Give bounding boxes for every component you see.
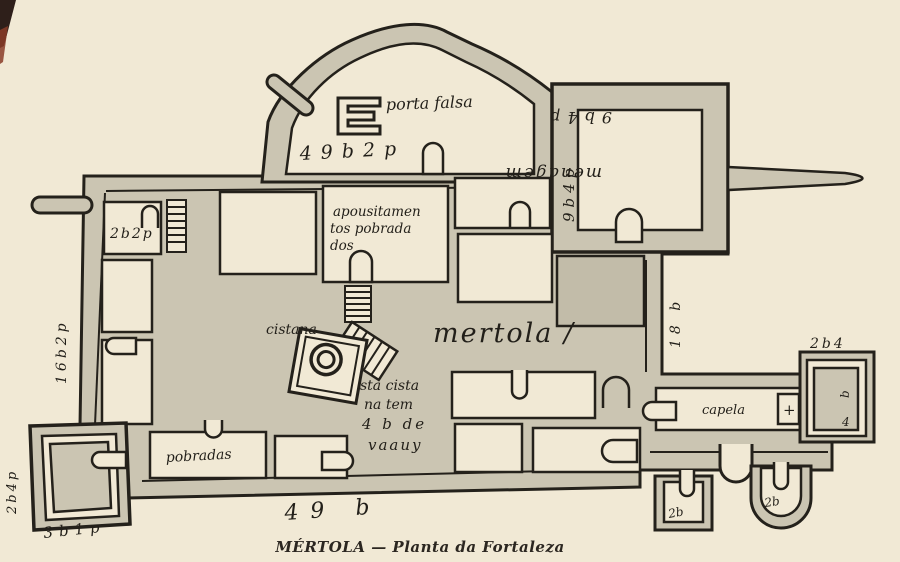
south-gate-opening <box>720 444 752 482</box>
measure-chapel-tower: 2b4 <box>809 336 846 352</box>
cistern-icon <box>289 329 367 404</box>
door-arch-icon <box>423 143 443 174</box>
label-lodgings-line1: apousitamen <box>333 204 421 220</box>
chapel-door-icon <box>643 402 676 420</box>
sw-corner-tower <box>30 423 130 530</box>
label-cistern-note-1: sta cista <box>360 378 419 394</box>
measure-east-wall: 18 b <box>668 297 684 348</box>
keyhole-door-icon <box>106 338 136 354</box>
room-top-5 <box>458 234 552 302</box>
label-cistern: cistana <box>266 322 317 338</box>
label-chapel: capela <box>702 403 745 418</box>
caption: MÉRTOLA — Planta da Fortaleza <box>274 538 564 556</box>
door-notch-icon <box>680 470 694 496</box>
measure-keep-side: 9b4p <box>560 164 578 222</box>
room-west-1 <box>102 260 152 332</box>
door-notch-icon <box>512 370 527 399</box>
keyhole-door-icon <box>92 452 126 468</box>
label-keep-name: menagem <box>504 163 602 183</box>
fortress-plan-drawing: porta falsa 49b2p menagem 9b4p 9b4p 2b2p… <box>0 0 900 562</box>
measure-nw-room: 2b2p <box>109 226 154 242</box>
keyhole-door-icon <box>602 440 637 462</box>
measure-west-wall: 16b2p <box>54 319 70 384</box>
measure-chapel-tower-inner-4: 4 <box>841 415 850 429</box>
label-cistern-note-3: 4 b de <box>361 415 427 433</box>
se-square-tower <box>655 470 712 530</box>
label-lodgings-line2: tos pobrada <box>330 221 411 237</box>
room-bottom-4 <box>455 424 522 472</box>
measure-sw-tower-side: 2b4p <box>5 469 20 515</box>
measure-keep-top: 9b4p <box>543 108 612 127</box>
keep-door-arch-icon <box>616 209 642 242</box>
stairs-icon <box>167 200 186 252</box>
room-top-2 <box>220 192 316 274</box>
door-arch-icon <box>350 251 372 282</box>
scanned-page: porta falsa 49b2p menagem 9b4p 9b4p 2b2p… <box>0 0 900 562</box>
gate-icon <box>338 98 380 134</box>
label-lodgings-line3: dos <box>330 238 354 254</box>
keyhole-door-icon <box>322 452 353 470</box>
label-porta-falsa: porta falsa <box>385 92 473 114</box>
room-below-keep <box>557 256 644 326</box>
measure-se-round-tower: 2b <box>762 494 780 510</box>
label-cistern-note-4: vaauy <box>368 436 423 454</box>
door-notch-icon <box>774 462 788 489</box>
cross-icon: + <box>783 401 796 419</box>
se-round-tower <box>751 462 811 528</box>
room-top-4 <box>455 178 550 228</box>
measure-chapel-tower-inner-b: b <box>838 390 852 398</box>
chapel-tower <box>800 352 874 442</box>
label-cistern-note-2: na tem <box>364 397 413 413</box>
label-castle-name: mertola / <box>433 318 576 349</box>
door-notch-icon <box>205 420 222 438</box>
measure-se-square-tower: 2b <box>666 505 685 522</box>
